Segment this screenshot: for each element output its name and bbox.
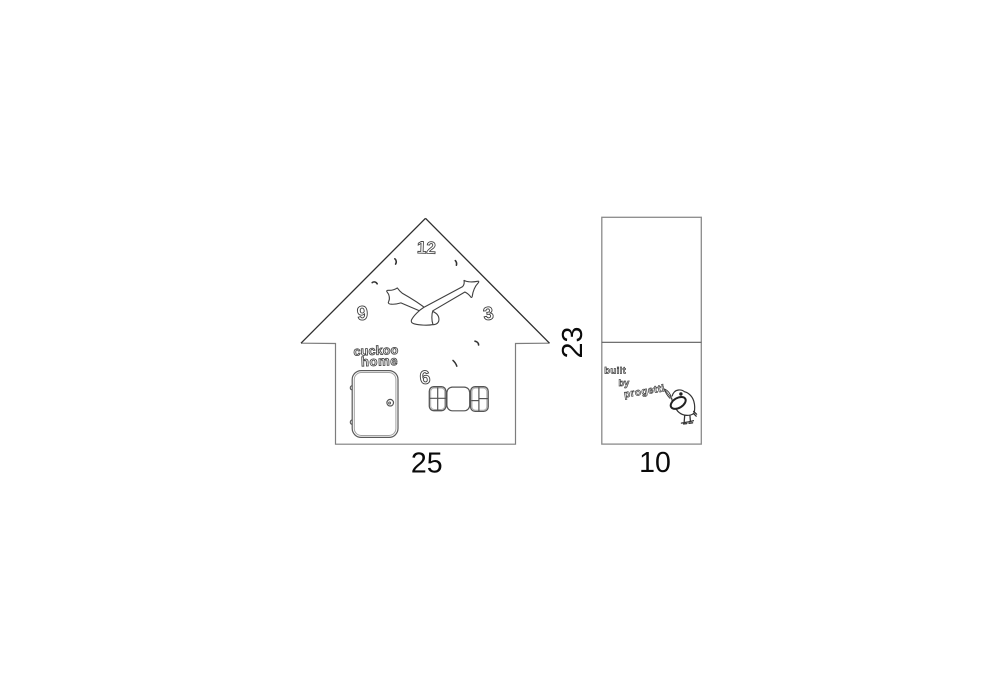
svg-text:home: home (361, 353, 399, 369)
svg-text:10: 10 (639, 447, 671, 479)
svg-text:23: 23 (557, 327, 589, 359)
svg-text:by: by (619, 378, 631, 388)
svg-text:12: 12 (417, 238, 437, 258)
svg-text:built: built (604, 366, 626, 377)
svg-text:25: 25 (411, 447, 443, 479)
svg-text:9: 9 (356, 303, 369, 326)
